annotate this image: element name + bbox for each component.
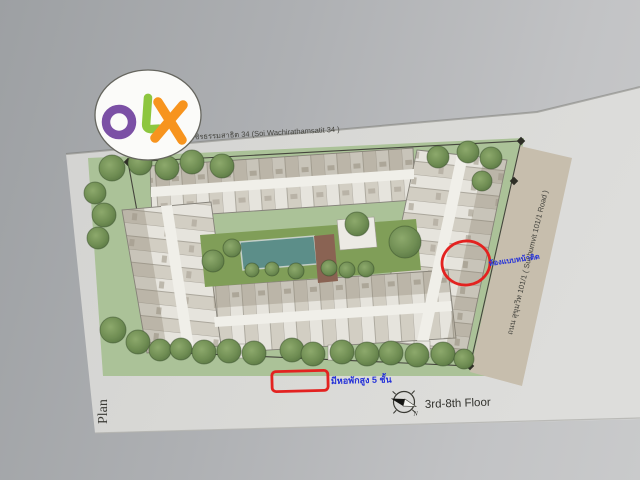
tree [379, 341, 403, 365]
tree [180, 150, 204, 174]
tree [192, 340, 216, 364]
tree [480, 147, 502, 169]
olx-logo: OLX [95, 70, 201, 160]
tree [202, 250, 224, 272]
tree [288, 263, 304, 279]
tree [99, 155, 125, 181]
tree [280, 338, 304, 362]
tree [100, 317, 126, 343]
tree [87, 227, 109, 249]
tree [265, 262, 279, 276]
tree [170, 338, 192, 360]
tree [358, 261, 374, 277]
tree [427, 146, 449, 168]
tree [389, 226, 421, 258]
tree [457, 141, 479, 163]
tree [321, 260, 337, 276]
tree [330, 340, 354, 364]
tree [339, 262, 355, 278]
tree [472, 171, 492, 191]
tree [92, 203, 116, 227]
tree [355, 342, 379, 366]
tree [405, 343, 429, 367]
tree [301, 342, 325, 366]
tree [126, 330, 150, 354]
site-plan-canvas: ซอยวชิรธรรมสาธิต 34 (Soi Wachirathamsati… [0, 0, 640, 480]
tree [242, 341, 266, 365]
tree [245, 263, 259, 277]
tree [217, 339, 241, 363]
tree [84, 182, 106, 204]
floor-range-label: 3rd-8th Floor [425, 397, 491, 411]
tree [454, 349, 474, 369]
tree [223, 239, 241, 257]
tree [210, 154, 234, 178]
compass-n-label: N [412, 411, 418, 418]
tree [431, 342, 455, 366]
site-plan-photo: ซอยวชิรธรรมสาธิต 34 (Soi Wachirathamsati… [0, 0, 640, 480]
tree [149, 339, 171, 361]
plan-title: Plan [96, 399, 111, 424]
tree [345, 212, 369, 236]
